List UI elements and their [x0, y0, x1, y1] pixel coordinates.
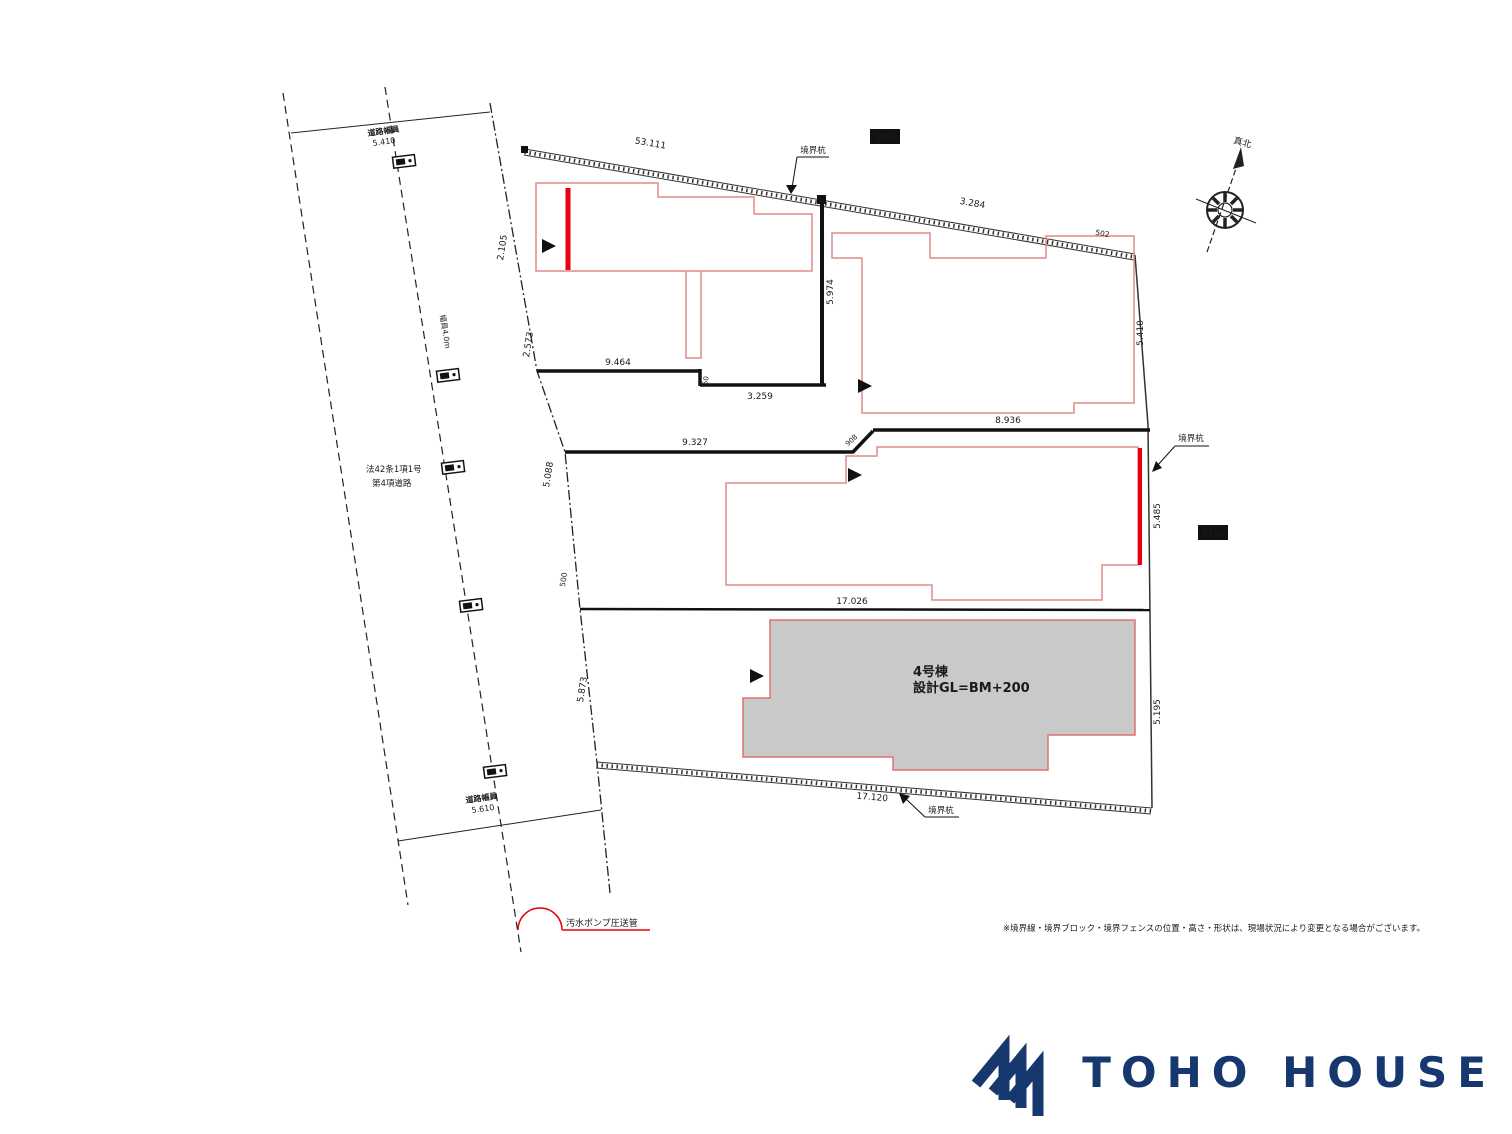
- road-edge-line-west: [283, 93, 408, 905]
- corner-mark: [521, 146, 528, 153]
- disclaimer-note: ※境界線・境界ブロック・境界フェンスの位置・高さ・形状は、現場状況により変更とな…: [1003, 923, 1425, 934]
- utility-marker: [483, 765, 506, 779]
- dim-top-right2: 502: [1095, 228, 1111, 239]
- dim-top-main: 53.111: [634, 136, 667, 151]
- dim-east3: 5.195: [1153, 699, 1163, 725]
- brand-logo-text: TOHO HOUSE: [1082, 1048, 1496, 1097]
- dim-div2-b: 8.936: [995, 416, 1021, 426]
- division-line-1: [537, 369, 826, 386]
- road-labels: 道路幅員 5.410 道路幅員 5.610 法42条1項1号 第4項道路 幅員4…: [366, 124, 498, 815]
- road-width-top-value: 5.410: [372, 136, 396, 148]
- benchmark-box-top: B50: [877, 133, 893, 142]
- road-along-label: 幅員4.0m: [438, 314, 453, 349]
- road-law-label-line2: 第4項道路: [372, 478, 412, 489]
- drain-note-group: 汚水ポンプ圧送管: [518, 908, 650, 930]
- stake-label-top: 境界杭: [800, 145, 826, 156]
- lot4-direction-triangle-icon: [750, 669, 764, 683]
- boundary-north-line: [524, 149, 1135, 260]
- lot1: [536, 183, 812, 358]
- utility-marker: [392, 155, 415, 169]
- site-plan-drawing: 道路幅員 5.410 道路幅員 5.610 法42条1項1号 第4項道路 幅員4…: [0, 0, 1512, 1134]
- brand-logo: TOHO HOUSE: [972, 1026, 1496, 1118]
- lot2-direction-triangle-icon: [858, 379, 872, 393]
- lot3-direction-triangle-icon: [848, 468, 862, 482]
- lot4: 4号棟 設計GL=BM+200: [743, 620, 1135, 770]
- boundary-south-line: [596, 762, 1152, 814]
- utility-marker: [441, 461, 464, 475]
- benchmark-box-right: B110: [1203, 529, 1224, 538]
- dim-west1: 2.105: [496, 234, 510, 261]
- dim-east1: 5.410: [1136, 320, 1146, 346]
- drain-note-text: 汚水ポンプ圧送管: [566, 917, 638, 929]
- toho-house-mark-icon: [972, 1026, 1058, 1118]
- benchmark-boxes: B50 B110: [870, 129, 1228, 540]
- road-lines: [283, 87, 601, 952]
- north-label: 真北: [1232, 134, 1253, 150]
- lot3-building-outline: [726, 447, 1138, 600]
- dim-west3: 5.088: [542, 461, 556, 488]
- road-edge-line-center: [385, 87, 521, 952]
- lot3: [726, 447, 1140, 600]
- lot2: [832, 233, 1134, 413]
- stake-label-right: 境界杭: [1178, 433, 1204, 444]
- north-arrow-icon: [1233, 147, 1244, 169]
- lot1-direction-triangle-icon: [542, 239, 556, 253]
- dim-west4: 500: [558, 572, 569, 588]
- lot4-label-line2: 設計GL=BM+200: [913, 680, 1030, 696]
- road-cross-line-bottom: [398, 810, 601, 841]
- dim-west5: 5.873: [576, 676, 590, 703]
- dim-div2-a: 9.327: [682, 438, 708, 448]
- road-width-top-label: 道路幅員: [367, 124, 400, 138]
- site-plan-page: 道路幅員 5.410 道路幅員 5.610 法42条1項1号 第4項道路 幅員4…: [0, 0, 1512, 1134]
- north-compass: 真北: [1196, 134, 1256, 252]
- compass-axis-line: [1207, 157, 1240, 252]
- lot1-building-wing: [686, 271, 701, 358]
- dim-top-right1: 3.284: [959, 197, 986, 211]
- dim-lot2-west: 5.974: [826, 279, 836, 305]
- utility-marker: [459, 599, 482, 613]
- stake-label-bottom: 境界杭: [928, 805, 954, 816]
- dim-div1-b: 3.259: [747, 392, 773, 402]
- utility-marker: [436, 369, 459, 383]
- division-line-3: [580, 609, 1150, 610]
- drain-arc-icon: [518, 908, 562, 930]
- road-width-bottom-value: 5.610: [471, 803, 495, 815]
- division-line-2: [565, 430, 1150, 452]
- dim-east2: 5.485: [1153, 503, 1163, 529]
- dim-div1-a: 9.464: [605, 358, 631, 368]
- dim-div3: 17.026: [836, 597, 868, 607]
- leader-arrow-icon: [899, 793, 910, 804]
- road-law-label-line1: 法42条1項1号: [366, 464, 422, 475]
- dim-south: 17.120: [856, 792, 888, 805]
- boundary-west-line: [490, 103, 610, 893]
- leader-arrow-icon: [786, 185, 797, 194]
- lot4-label-line1: 4号棟: [913, 664, 949, 680]
- dim-div1-step: 50: [701, 376, 710, 386]
- lot2-building-outline: [832, 233, 1134, 413]
